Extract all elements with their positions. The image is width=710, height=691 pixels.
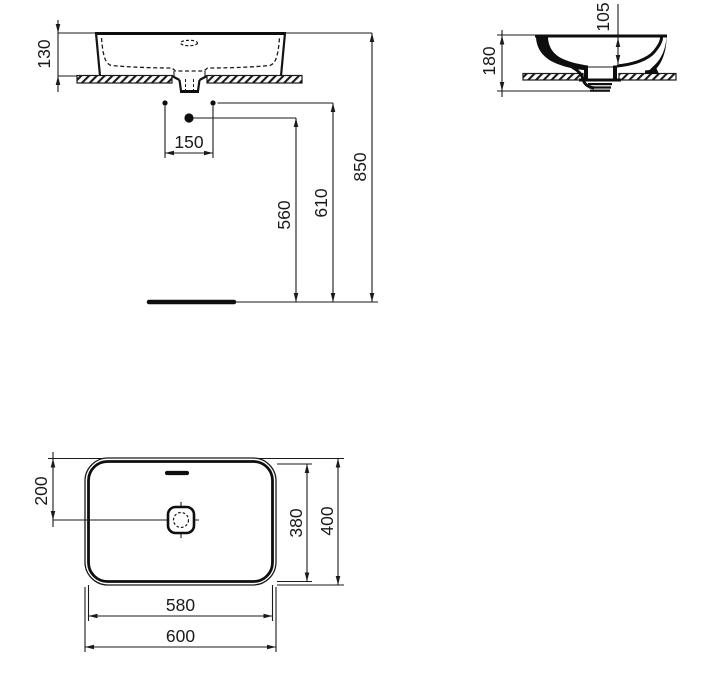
technical-drawing: 130 150 560 610 850	[0, 0, 710, 691]
dim-610-label: 610	[311, 188, 331, 217]
dim-105-label: 105	[593, 2, 613, 31]
small-hole-dot-left	[162, 100, 167, 105]
dim-560-label: 560	[274, 200, 294, 229]
small-hole-dot-right	[210, 100, 215, 105]
dim-380-label: 380	[286, 508, 306, 537]
large-hole-dot	[184, 113, 193, 122]
sheet-background	[0, 0, 710, 691]
dim-400-label: 400	[317, 506, 337, 535]
dim-150-label: 150	[174, 132, 203, 152]
dim-200-label: 200	[31, 476, 51, 505]
dim-600-label: 600	[166, 626, 195, 646]
dim-850-label: 850	[350, 152, 370, 181]
dim-180-label: 180	[479, 46, 499, 75]
dim-130-label: 130	[34, 39, 54, 68]
dim-580-label: 580	[166, 595, 195, 615]
drawing-sheet: 130 150 560 610 850	[0, 0, 710, 691]
